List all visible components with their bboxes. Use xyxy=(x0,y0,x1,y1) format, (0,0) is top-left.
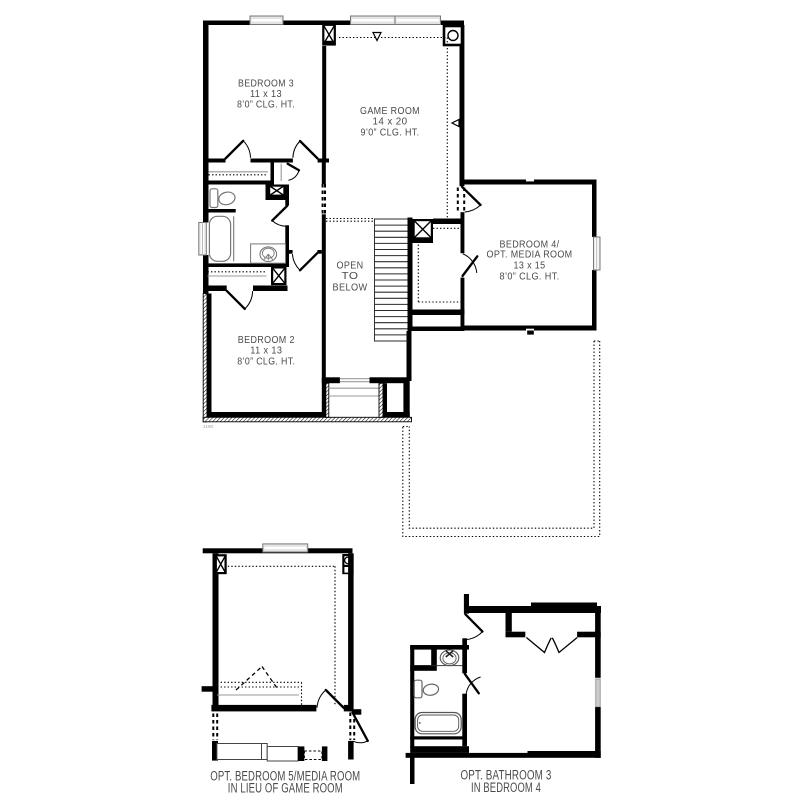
svg-text:11 x 13: 11 x 13 xyxy=(250,345,282,356)
svg-text:OPEN: OPEN xyxy=(337,261,364,272)
svg-text:8’0” CLG. HT.: 8’0” CLG. HT. xyxy=(500,272,560,283)
svg-text:8’0” CLG. HT.: 8’0” CLG. HT. xyxy=(237,357,295,368)
svg-text:11 x 13: 11 x 13 xyxy=(250,89,282,100)
svg-text:GAME ROOM: GAME ROOM xyxy=(360,106,420,117)
svg-text:13 x 15: 13 x 15 xyxy=(514,261,546,272)
svg-text:2190: 2190 xyxy=(203,424,214,429)
svg-text:IN LIEU OF GAME ROOM: IN LIEU OF GAME ROOM xyxy=(228,781,343,796)
svg-text:8’0” CLG. HT.: 8’0” CLG. HT. xyxy=(237,100,295,111)
svg-text:TO: TO xyxy=(342,271,359,282)
svg-text:9’0” CLG. HT.: 9’0” CLG. HT. xyxy=(361,127,420,138)
svg-text:BEDROOM 3: BEDROOM 3 xyxy=(238,79,294,90)
svg-text:IN BEDROOM 4: IN BEDROOM 4 xyxy=(471,780,541,795)
svg-text:BELOW: BELOW xyxy=(333,282,368,293)
svg-text:OPT. MEDIA ROOM: OPT. MEDIA ROOM xyxy=(487,250,573,261)
svg-text:14 x 20: 14 x 20 xyxy=(373,117,408,128)
